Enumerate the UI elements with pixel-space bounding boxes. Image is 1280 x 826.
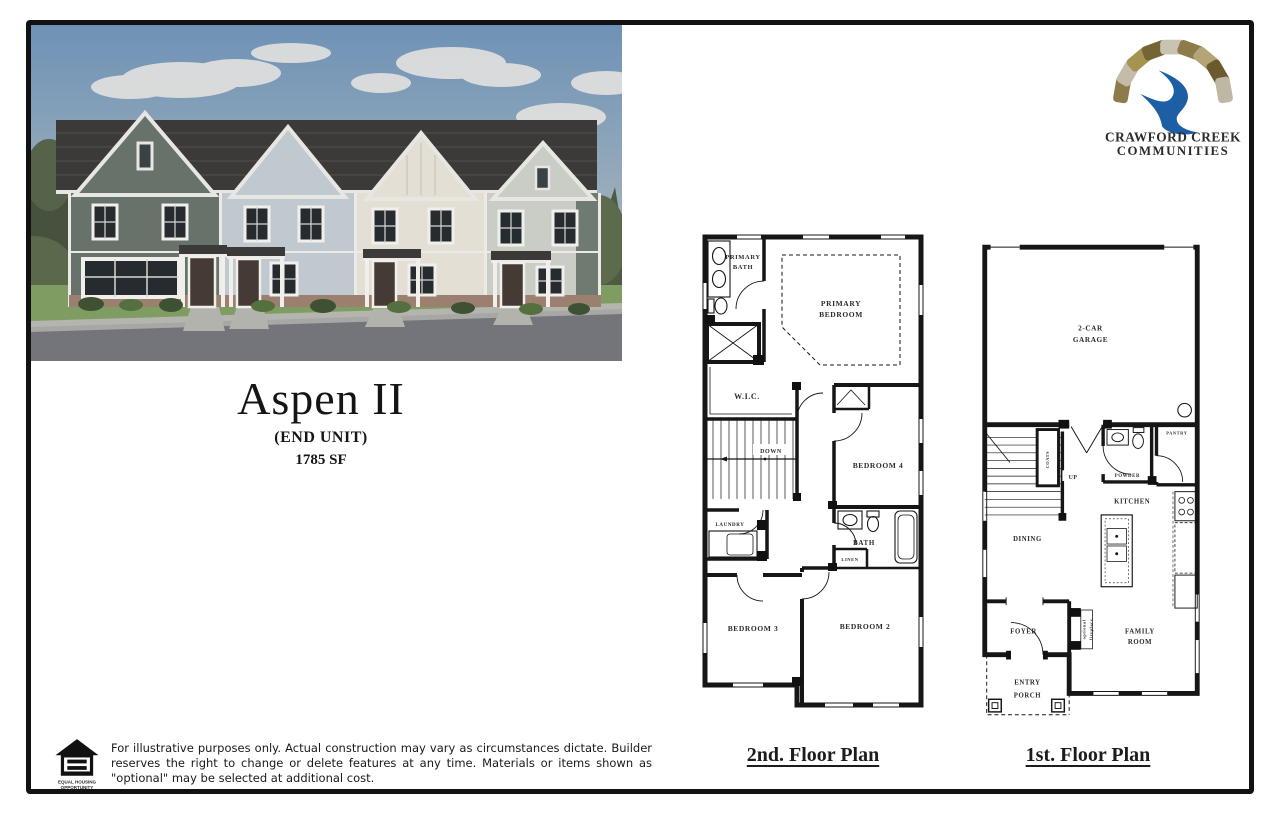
unit-type-label: (END UNIT) [141,429,501,447]
logo-line1: CRAWFORD CREEK [1105,129,1241,144]
room-label-entry-porch-2: PORCH [1014,692,1042,699]
second-floor-plan: PRIMARY BATH PRIMARY BEDROOM W.I.C. DOWN… [697,227,929,711]
room-label-optional-fireplace-2: fireplace [1088,619,1093,640]
room-label-powder: POWDER [1115,474,1140,479]
disclaimer-text: For illustrative purposes only. Actual c… [111,737,652,787]
room-label-primary-bath-1: PRIMARY [725,254,760,261]
title-block: Aspen II (END UNIT) 1785 SF [141,375,501,469]
room-label-garage-2: GARAGE [1073,336,1108,344]
logo-line2: COMMUNITIES [1117,144,1229,158]
room-label-foyer: FOYER [1010,628,1037,635]
room-label-coats: COATS [1045,451,1050,469]
room-label-dining: DINING [1013,536,1042,543]
room-label-bath: BATH [853,539,875,547]
room-label-garage-1: 2-CAR [1078,325,1103,333]
second-floor-caption: 2nd. Floor Plan [697,744,929,767]
square-footage-label: 1785 SF [141,452,501,469]
first-floor-plan: 2-CAR GARAGE COATS UP POWDER PANTRY KITC… [977,232,1205,728]
townhouse-rendering-image [31,25,622,361]
room-label-bedroom-2: BEDROOM 2 [840,622,891,631]
room-label-linen: LINEN [841,557,858,562]
room-label-primary-bedroom-1: PRIMARY [821,299,861,308]
room-label-up: UP [1069,475,1078,481]
crawford-creek-logo-image: CRAWFORD CREEK COMMUNITIES [1099,27,1247,159]
room-label-kitchen: KITCHEN [1114,498,1150,505]
stone-arch-icon [1112,39,1233,104]
crawford-creek-logo: CRAWFORD CREEK COMMUNITIES [1099,27,1247,159]
page-title: Aspen II [141,375,501,423]
room-label-down: DOWN [760,449,782,455]
room-label-pantry: PANTRY [1166,430,1187,435]
room-label-family-room-1: FAMILY [1125,628,1155,635]
room-label-laundry: LAUNDRY [715,523,744,528]
page-frame: CRAWFORD CREEK COMMUNITIES Aspen II (END… [26,20,1254,794]
room-label-entry-porch-1: ENTRY [1014,680,1040,687]
creek-swoosh-icon [1140,70,1197,134]
eho-text-line2: OPPORTUNITY [61,785,94,790]
room-label-bedroom-4: BEDROOM 4 [853,461,904,470]
eho-text-line1: EQUAL HOUSING [58,779,97,784]
equal-housing-logo: EQUAL HOUSING OPPORTUNITY [52,737,102,793]
room-label-bedroom-3: BEDROOM 3 [728,624,779,633]
room-label-primary-bath-2: BATH [733,264,753,271]
first-floor-caption: 1st. Floor Plan [974,744,1202,767]
room-label-wic: W.I.C. [734,392,760,401]
disclaimer: EQUAL HOUSING OPPORTUNITY For illustrati… [52,737,652,793]
townhouse-rendering [31,25,622,361]
room-label-primary-bedroom-2: BEDROOM [819,310,863,319]
room-label-family-room-2: ROOM [1128,639,1152,646]
floor-plan-sheet: { "title_block": { "name": "Aspen II", "… [0,0,1280,826]
room-label-optional-fireplace-1: optional [1082,619,1087,639]
